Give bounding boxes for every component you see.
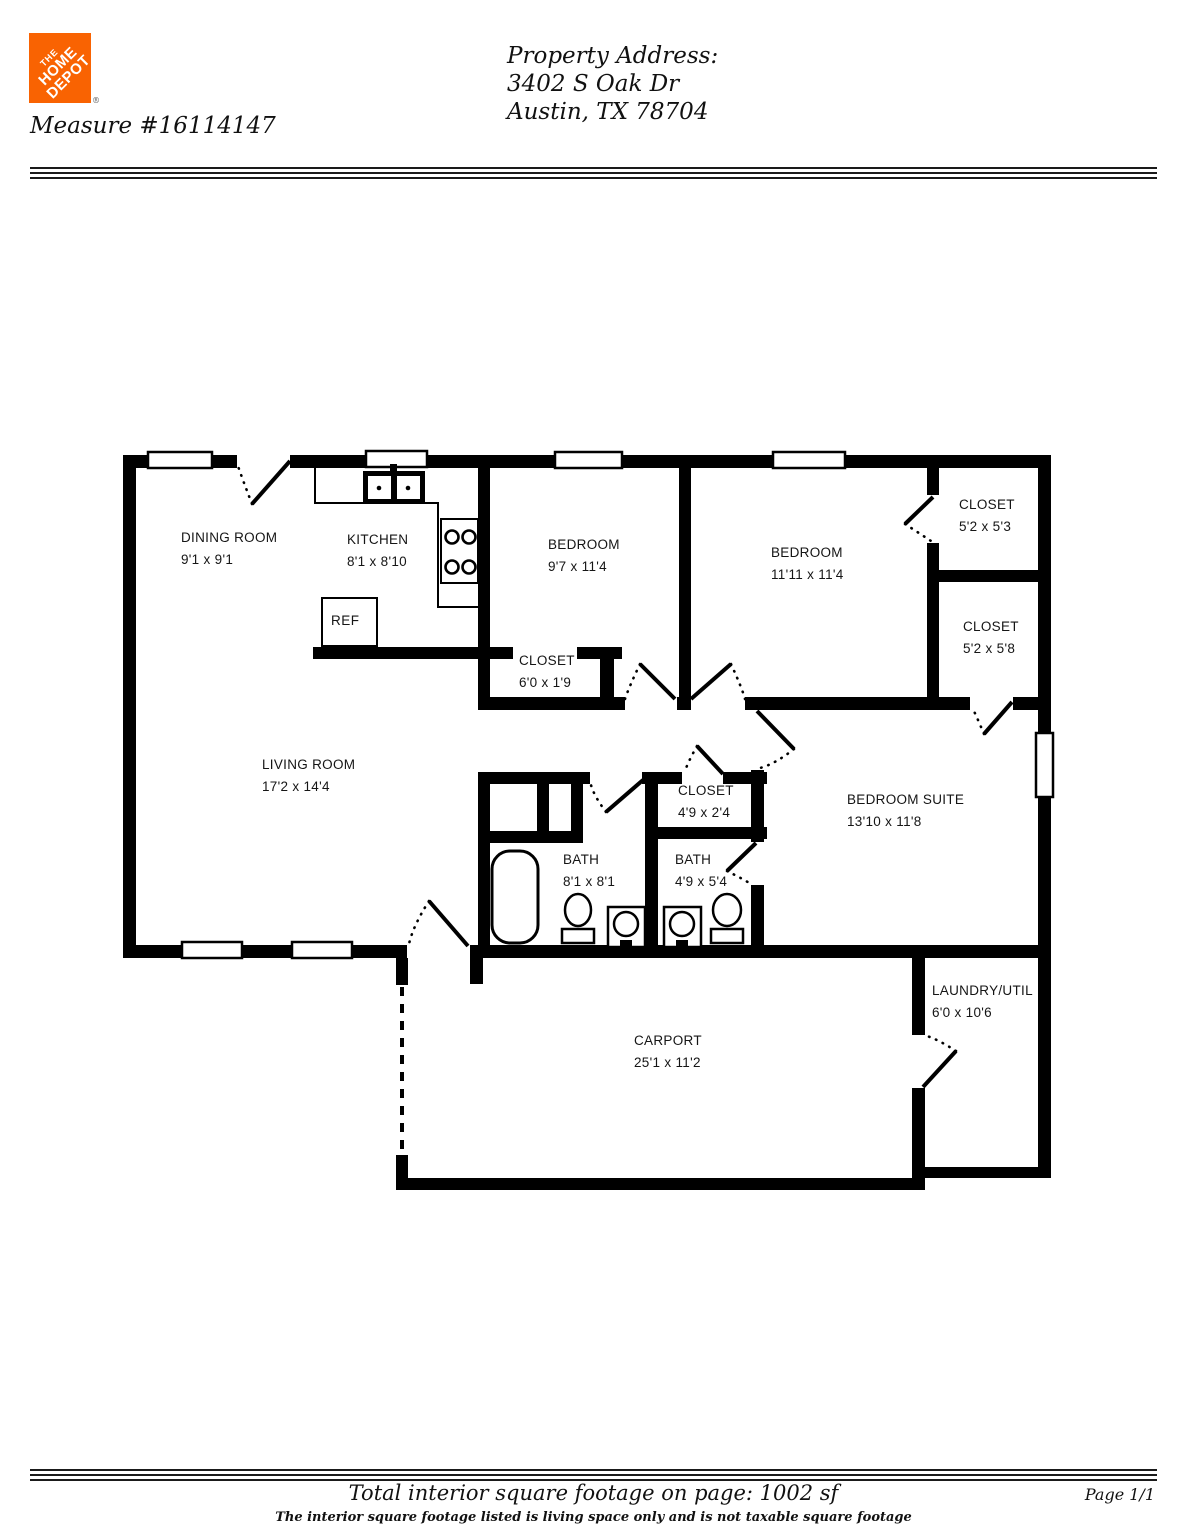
measure-document-page: THE HOME DEPOT ® Measure #16114147 Prope…	[0, 0, 1187, 1536]
bedroom1-door	[640, 664, 675, 699]
hall-closet-door	[697, 746, 723, 774]
suite-north-door	[984, 702, 1012, 734]
room-label-closet2: CLOSET 5'2 x 5'8	[963, 616, 1019, 660]
sink1-pedestal	[620, 940, 632, 948]
bathtub-icon	[492, 851, 538, 943]
page-number: Page 1/1	[1085, 1485, 1155, 1504]
footer-divider-rule	[30, 1469, 1157, 1471]
window-bedroom-suite	[1036, 733, 1053, 797]
footage-disclaimer: The interior square footage listed is li…	[0, 1510, 1187, 1525]
front-door	[252, 461, 290, 504]
room-label-bedroom1: BEDROOM 9'7 x 11'4	[548, 534, 620, 578]
total-square-footage: Total interior square footage on page: 1…	[0, 1481, 1187, 1505]
sink2-basin	[670, 912, 694, 936]
floor-plan-drawing	[0, 0, 1187, 1536]
room-label-living: LIVING ROOM 17'2 x 14'4	[262, 754, 355, 798]
footer-divider-rule	[30, 1474, 1157, 1476]
bath2-door	[727, 843, 756, 871]
laundry-door	[923, 1051, 956, 1087]
toilet1-icon	[565, 894, 591, 926]
room-label-bedroom2: BEDROOM 11'11 x 11'4	[771, 542, 844, 586]
room-label-laundry: LAUNDRY/UTIL 6'0 x 10'6	[932, 980, 1033, 1024]
room-label-bath2: BATH 4'9 x 5'4	[675, 849, 727, 893]
window-living1	[182, 942, 242, 958]
room-label-hall-closet: CLOSET 4'9 x 2'4	[678, 780, 734, 824]
kitchen-sink-icon	[363, 464, 425, 504]
toilet1-tank	[562, 929, 594, 943]
room-label-closet-wardrobe: CLOSET 6'0 x 1'9	[519, 650, 575, 694]
toilet2-icon	[713, 894, 741, 926]
window-bedroom2	[773, 452, 845, 468]
sink1-basin	[614, 912, 638, 936]
refrigerator-label: REF	[331, 613, 360, 628]
room-label-dining: DINING ROOM 9'1 x 9'1	[181, 527, 277, 571]
suite-entry-door	[757, 711, 794, 749]
carport-entry-door	[429, 901, 468, 946]
window-bedroom1	[555, 452, 622, 468]
room-label-carport: CARPORT 25'1 x 11'2	[634, 1030, 702, 1074]
room-label-closet1: CLOSET 5'2 x 5'3	[959, 494, 1015, 538]
toilet2-tank	[711, 929, 743, 943]
window-dining	[148, 452, 212, 468]
window-living2	[292, 942, 352, 958]
bath1-door	[606, 780, 643, 812]
sink2-pedestal	[676, 940, 688, 948]
room-label-kitchen: KITCHEN 8'1 x 8'10	[347, 529, 408, 573]
room-label-bath1: BATH 8'1 x 8'1	[563, 849, 615, 893]
bedroom2-door	[691, 664, 731, 699]
closet1-door	[905, 497, 933, 524]
room-label-bedroom-suite: BEDROOM SUITE 13'10 x 11'8	[847, 789, 964, 833]
